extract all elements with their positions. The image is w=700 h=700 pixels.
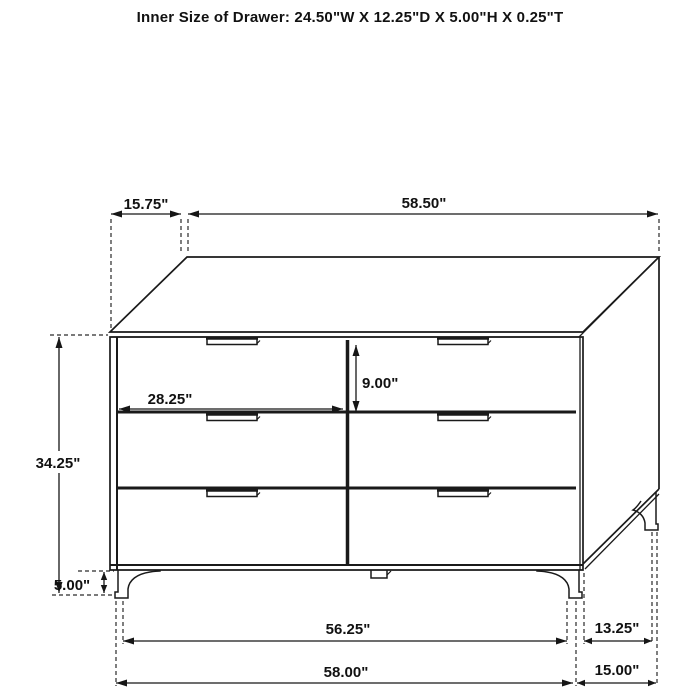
side-panel xyxy=(583,257,659,569)
drawer-handle xyxy=(437,491,491,497)
extension-lines xyxy=(50,219,659,686)
dim-overall-height: 34.25" xyxy=(33,337,85,593)
drawer-handle xyxy=(437,415,491,421)
dresser-diagram: 15.75" 58.50" 34.25" 5.00" 28.25" 9.00" … xyxy=(0,0,700,700)
dim-side-span: 13.25" xyxy=(584,620,652,641)
dim-leg-height: 5.00" xyxy=(54,572,104,594)
dim-label-top-width: 58.50" xyxy=(402,195,447,212)
dim-top-width: 58.50" xyxy=(188,195,658,214)
dim-label-front-width: 58.00" xyxy=(324,664,369,681)
drawer-dividers xyxy=(117,340,576,565)
front-right-leg xyxy=(537,570,582,598)
dim-drawer-height: 9.00" xyxy=(356,345,398,412)
dim-side-depth: 15.00" xyxy=(577,662,656,683)
dim-front-width: 58.00" xyxy=(116,664,573,683)
dim-label-leg-height: 5.00" xyxy=(54,577,90,594)
drawer-handle xyxy=(437,339,491,345)
dim-top-offset: 15.75" xyxy=(111,196,181,214)
dim-label-top-offset: 15.75" xyxy=(124,196,169,213)
dresser-body xyxy=(110,257,659,598)
dim-label-side-depth: 15.00" xyxy=(595,662,640,679)
center-glide xyxy=(371,570,391,578)
dim-label-overall-height: 34.25" xyxy=(36,455,81,472)
dim-label-drawer-height: 9.00" xyxy=(362,375,398,392)
top-panel xyxy=(110,257,659,337)
dim-front-span-inner: 56.25" xyxy=(123,621,567,641)
dim-label-side-span: 13.25" xyxy=(595,620,640,637)
drawer-handle xyxy=(206,339,260,345)
dim-drawer-width: 28.25" xyxy=(119,391,343,409)
dim-label-drawer-width: 28.25" xyxy=(148,391,193,408)
dim-label-front-span-inner: 56.25" xyxy=(326,621,371,638)
drawer-handle xyxy=(206,415,260,421)
diagram-canvas: Inner Size of Drawer: 24.50"W X 12.25"D … xyxy=(0,0,700,700)
drawer-handle xyxy=(206,491,260,497)
front-left-leg xyxy=(115,570,160,598)
back-right-leg xyxy=(633,492,658,530)
